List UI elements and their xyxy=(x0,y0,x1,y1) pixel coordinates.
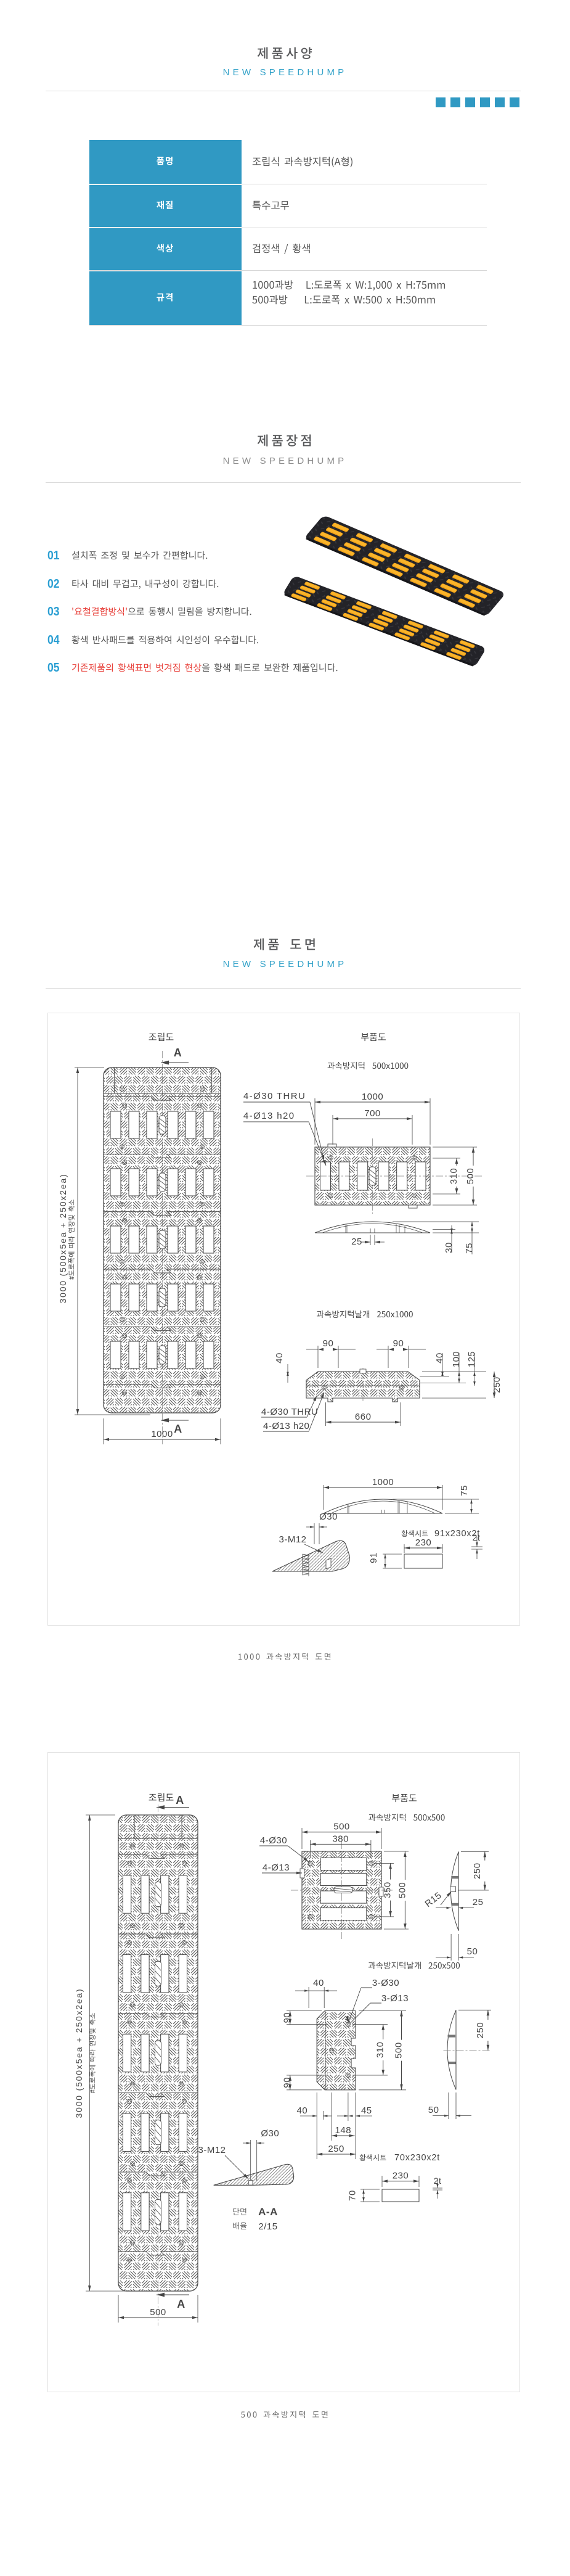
svg-text:25: 25 xyxy=(351,1237,362,1247)
svg-text:500: 500 xyxy=(397,1882,407,1899)
svg-text:100: 100 xyxy=(451,1351,462,1368)
svg-text:90: 90 xyxy=(282,2012,293,2023)
svg-text:4-Ø30 THRU: 4-Ø30 THRU xyxy=(243,1091,306,1101)
svg-text:3-Ø13: 3-Ø13 xyxy=(381,1993,409,2004)
svg-text:250: 250 xyxy=(492,1376,502,1393)
svg-text:A: A xyxy=(177,2298,185,2310)
svg-text:3-M12: 3-M12 xyxy=(198,2145,226,2155)
svg-text:500: 500 xyxy=(333,1822,350,1832)
svg-text:3000 (500x5ea + 250x2ea): 3000 (500x5ea + 250x2ea) xyxy=(58,1174,68,1304)
svg-text:75: 75 xyxy=(464,1243,474,1254)
svg-text:40: 40 xyxy=(297,2105,308,2116)
svg-text:Ø30: Ø30 xyxy=(261,2128,279,2139)
svg-text:4-Ø13 h20: 4-Ø13 h20 xyxy=(263,1421,309,1431)
svg-text:90: 90 xyxy=(393,1338,404,1349)
svg-text:700: 700 xyxy=(364,1108,381,1119)
svg-text:70x230x2t: 70x230x2t xyxy=(394,2153,440,2163)
svg-text:4-Ø30: 4-Ø30 xyxy=(260,1835,287,1846)
svg-text:4-Ø30 THRU: 4-Ø30 THRU xyxy=(261,1407,318,1417)
svg-text:40: 40 xyxy=(313,1978,324,1988)
svg-text:380: 380 xyxy=(332,1833,349,1844)
svg-text:50: 50 xyxy=(428,2105,439,2115)
svg-text:310: 310 xyxy=(375,2042,386,2059)
svg-text:2t: 2t xyxy=(473,1533,481,1542)
svg-text:500: 500 xyxy=(150,2307,166,2318)
svg-text:3-M12: 3-M12 xyxy=(279,1534,306,1545)
svg-text:90: 90 xyxy=(323,1338,334,1349)
svg-text:230: 230 xyxy=(393,2171,409,2181)
svg-text:Ø30: Ø30 xyxy=(319,1512,338,1522)
svg-text:148: 148 xyxy=(335,2125,352,2136)
svg-text:A: A xyxy=(174,1423,182,1435)
svg-text:40: 40 xyxy=(434,1352,445,1364)
svg-text:250: 250 xyxy=(328,2144,344,2154)
svg-text:500: 500 xyxy=(465,1168,476,1185)
svg-text:1000: 1000 xyxy=(372,1477,394,1488)
svg-text:R15: R15 xyxy=(423,1890,444,1909)
svg-text:350: 350 xyxy=(383,1882,393,1898)
svg-text:2/15: 2/15 xyxy=(258,2221,277,2232)
svg-text:500: 500 xyxy=(394,2042,404,2059)
svg-text:75: 75 xyxy=(459,1485,470,1496)
svg-text:30: 30 xyxy=(444,1242,454,1253)
svg-text:50: 50 xyxy=(467,1946,478,1957)
svg-text:250: 250 xyxy=(475,2022,486,2039)
svg-text:310: 310 xyxy=(449,1168,459,1185)
svg-text:40: 40 xyxy=(274,1352,285,1364)
svg-text:3000 (500x5ea + 250x2ea): 3000 (500x5ea + 250x2ea) xyxy=(74,1988,84,2118)
svg-text:125: 125 xyxy=(466,1351,477,1368)
svg-text:250: 250 xyxy=(472,1862,482,1879)
svg-text:25: 25 xyxy=(473,1897,484,1907)
svg-text:1000: 1000 xyxy=(151,1429,173,1439)
svg-text:90: 90 xyxy=(282,2077,293,2088)
svg-text:4-Ø13: 4-Ø13 xyxy=(263,1862,290,1873)
svg-text:660: 660 xyxy=(355,1412,372,1422)
svg-text:230: 230 xyxy=(415,1537,432,1548)
svg-text:A: A xyxy=(176,1794,184,1806)
svg-text:1000: 1000 xyxy=(362,1092,383,1102)
svg-text:45: 45 xyxy=(361,2105,372,2116)
svg-text:91: 91 xyxy=(368,1552,379,1563)
svg-text:4-Ø13 h20: 4-Ø13 h20 xyxy=(243,1111,295,1121)
svg-text:A-A: A-A xyxy=(258,2206,278,2218)
svg-text:3-Ø30: 3-Ø30 xyxy=(372,1978,399,1988)
svg-text:70: 70 xyxy=(348,2190,358,2201)
svg-text:A: A xyxy=(174,1047,182,1059)
